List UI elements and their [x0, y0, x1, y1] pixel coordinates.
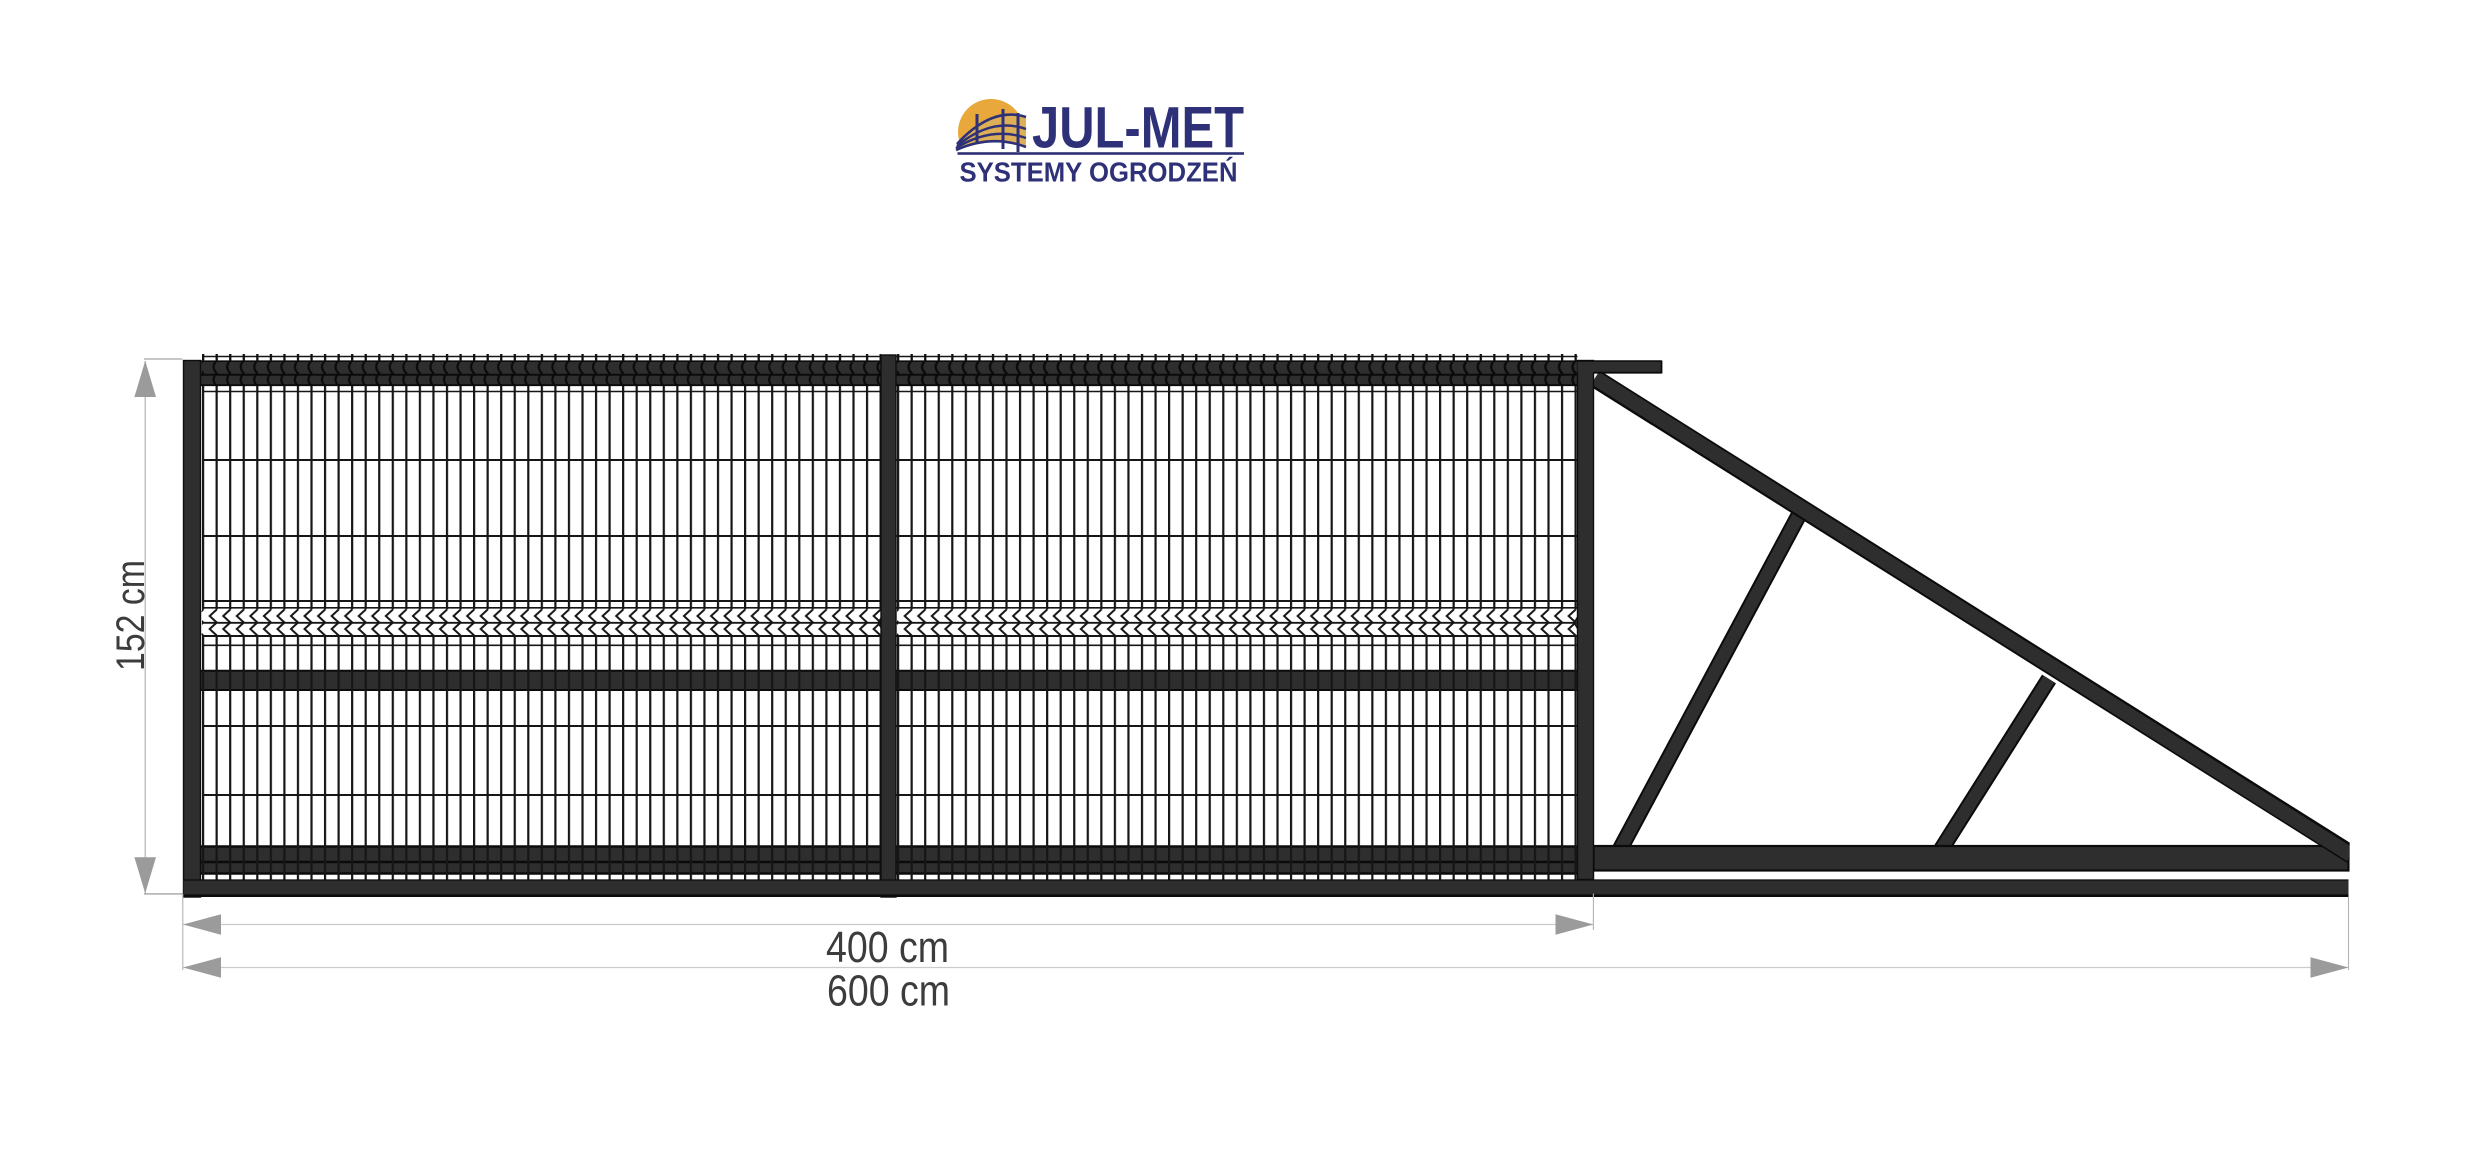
- svg-text:SYSTEMY OGRODZEŃ: SYSTEMY OGRODZEŃ: [960, 157, 1238, 188]
- svg-text:600 cm: 600 cm: [827, 967, 950, 1016]
- svg-text:JUL-MET: JUL-MET: [1032, 96, 1244, 161]
- svg-text:400 cm: 400 cm: [826, 923, 949, 972]
- svg-text:152 cm: 152 cm: [109, 560, 153, 671]
